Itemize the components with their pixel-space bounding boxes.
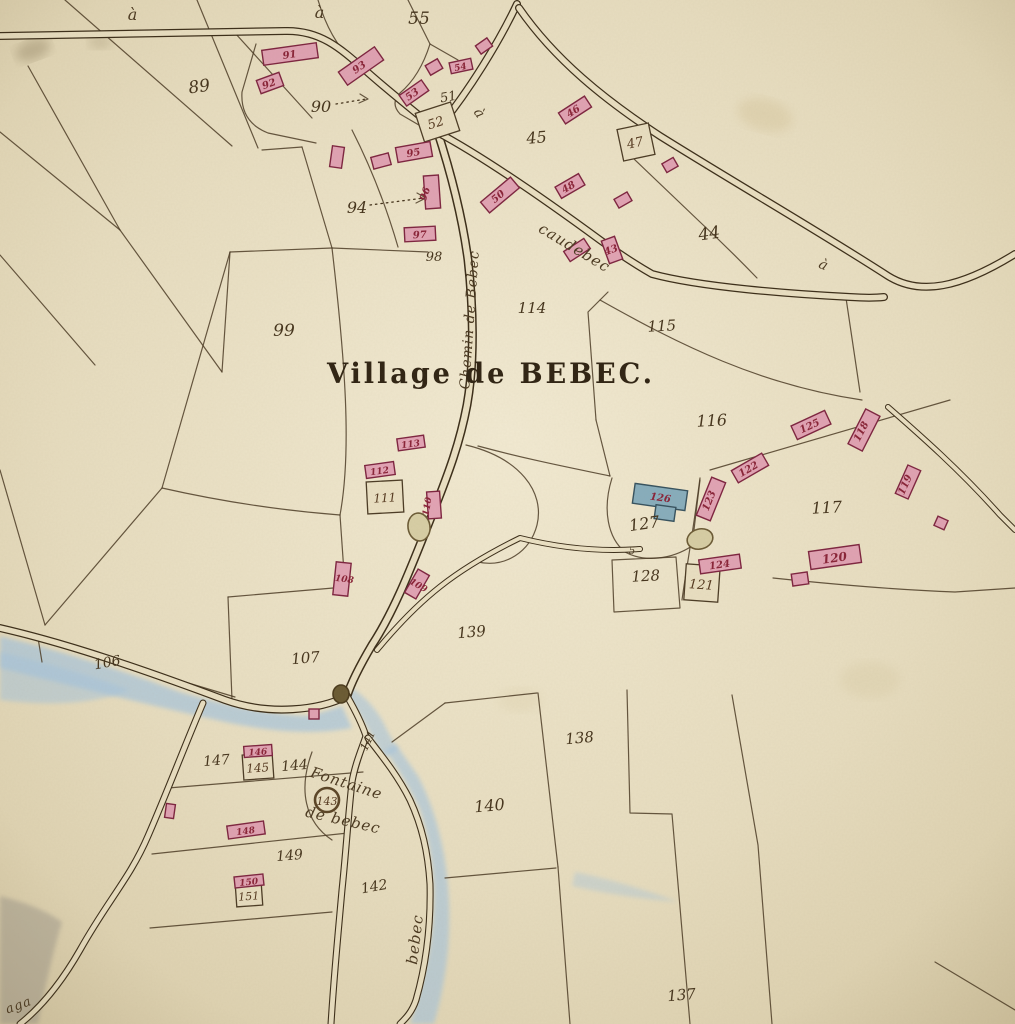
cadastral-map-page: 8990555194989945441141151161171271281061… bbox=[0, 0, 1015, 1024]
paper-grain bbox=[0, 0, 1015, 1024]
cadastral-map: 8990555194989945441141151161171271281061… bbox=[0, 0, 1015, 1024]
